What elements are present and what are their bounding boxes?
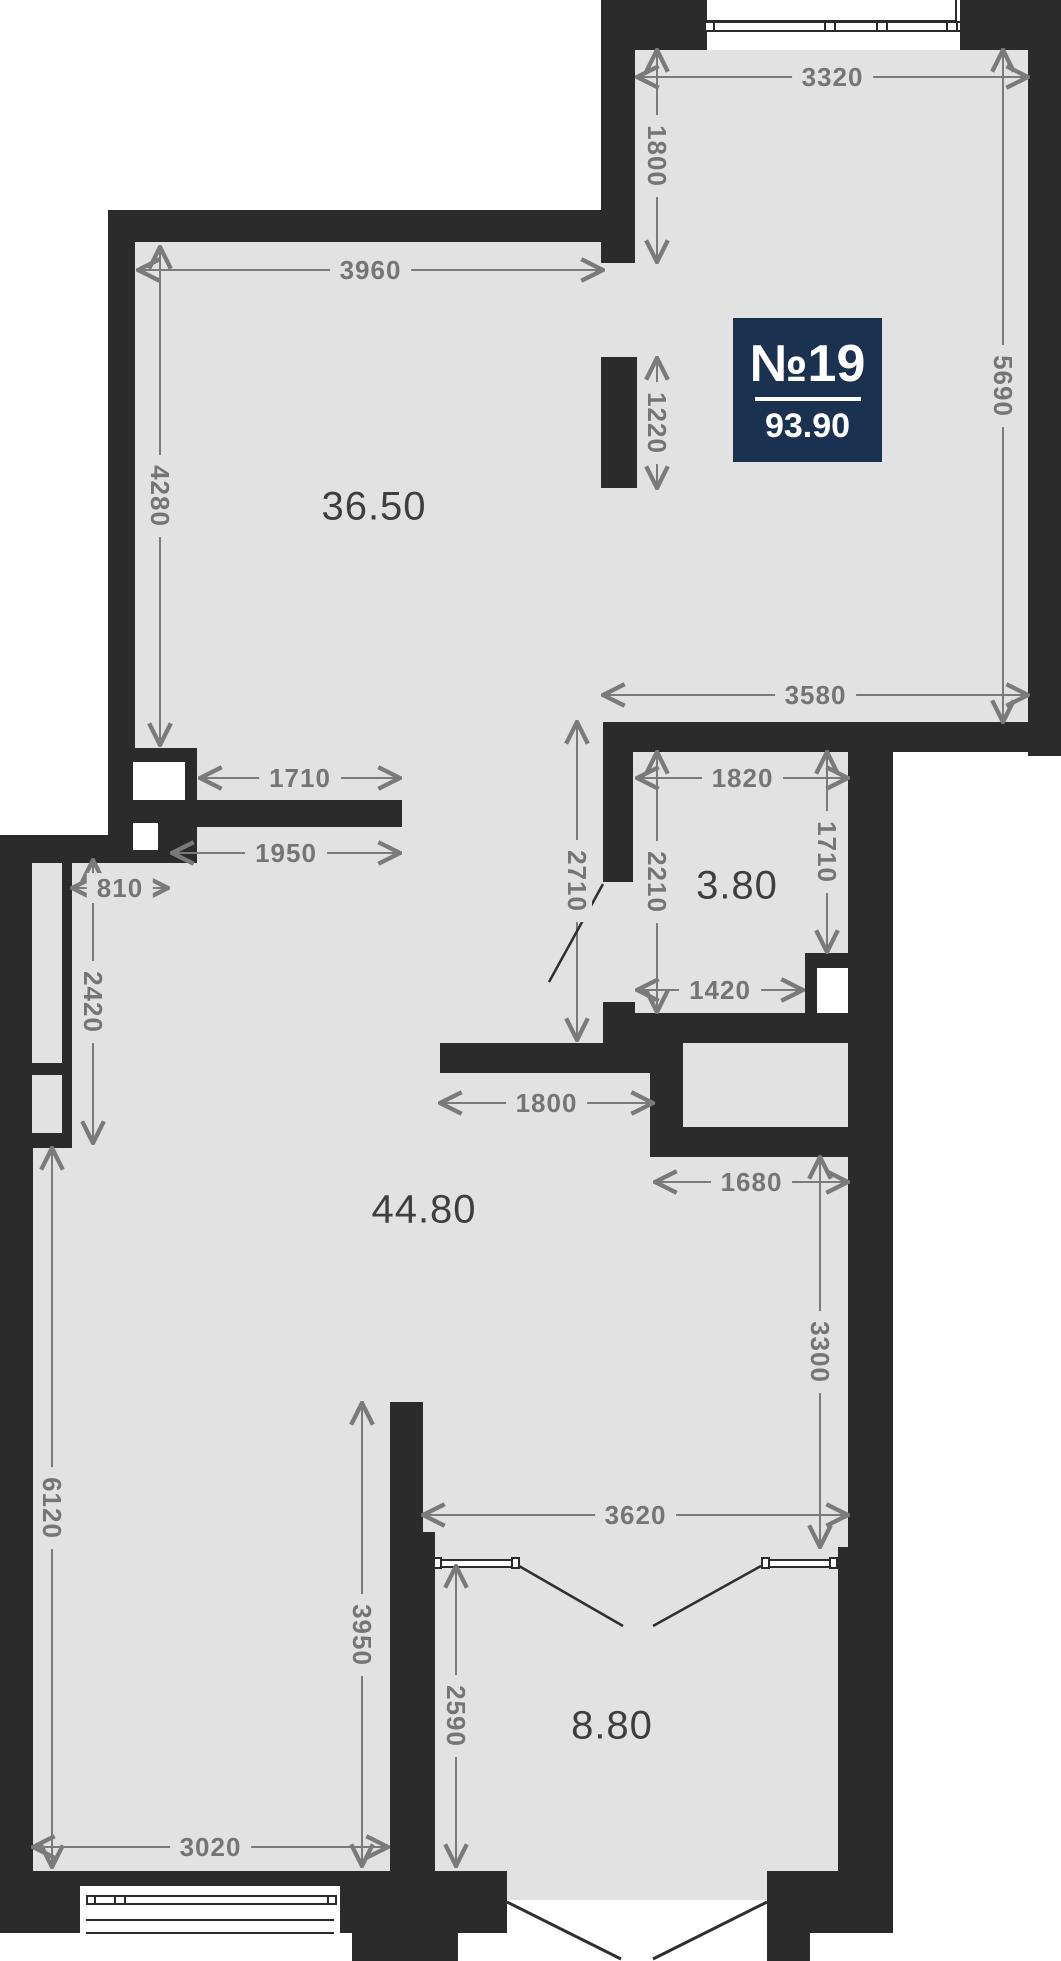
dimension-label: 1800 [506,1088,588,1118]
dimension-label: 6120 [37,1467,67,1549]
dimension-label: 2710 [562,840,592,922]
floor-plan-page: 3320396035801820171019508101420180016803… [0,0,1061,1961]
unit-area: 93.90 [765,409,850,443]
dimension-label: 2420 [78,961,108,1043]
dimension-label: 3950 [347,1594,377,1676]
dimension-label: 5690 [988,345,1018,427]
dimension-label: 3960 [330,255,412,285]
dimension-label: 1800 [642,115,672,197]
dimension-label: 1420 [679,975,761,1005]
dimension-label: 2210 [642,841,672,923]
room-area-label: 3.80 [696,864,778,909]
dimension-label: 1710 [259,763,341,793]
dimension-label: 3320 [792,62,874,92]
dimension-label: 3020 [170,1832,252,1862]
dimension-label: 1680 [711,1167,793,1197]
room-area-label: 44.80 [371,1188,476,1233]
dimension-label: 4280 [145,455,175,537]
dimension-label: 3300 [805,1311,835,1393]
dimension-label: 3620 [595,1500,677,1530]
dimension-label: 1820 [702,763,784,793]
labels-layer: 3320396035801820171019508101420180016803… [0,0,1061,1961]
unit-number: №19 [750,338,866,390]
dimension-label: 1220 [642,382,672,464]
badge-divider [755,397,861,401]
dimension-label: 1710 [812,811,842,893]
room-area-label: 8.80 [571,1704,653,1749]
dimension-label: 1950 [245,838,327,868]
dimension-label: 2590 [441,1675,471,1757]
dimension-label: 3580 [775,680,857,710]
room-area-label: 36.50 [321,485,426,530]
unit-badge: №19 93.90 [733,318,882,462]
dimension-label: 810 [87,873,153,903]
